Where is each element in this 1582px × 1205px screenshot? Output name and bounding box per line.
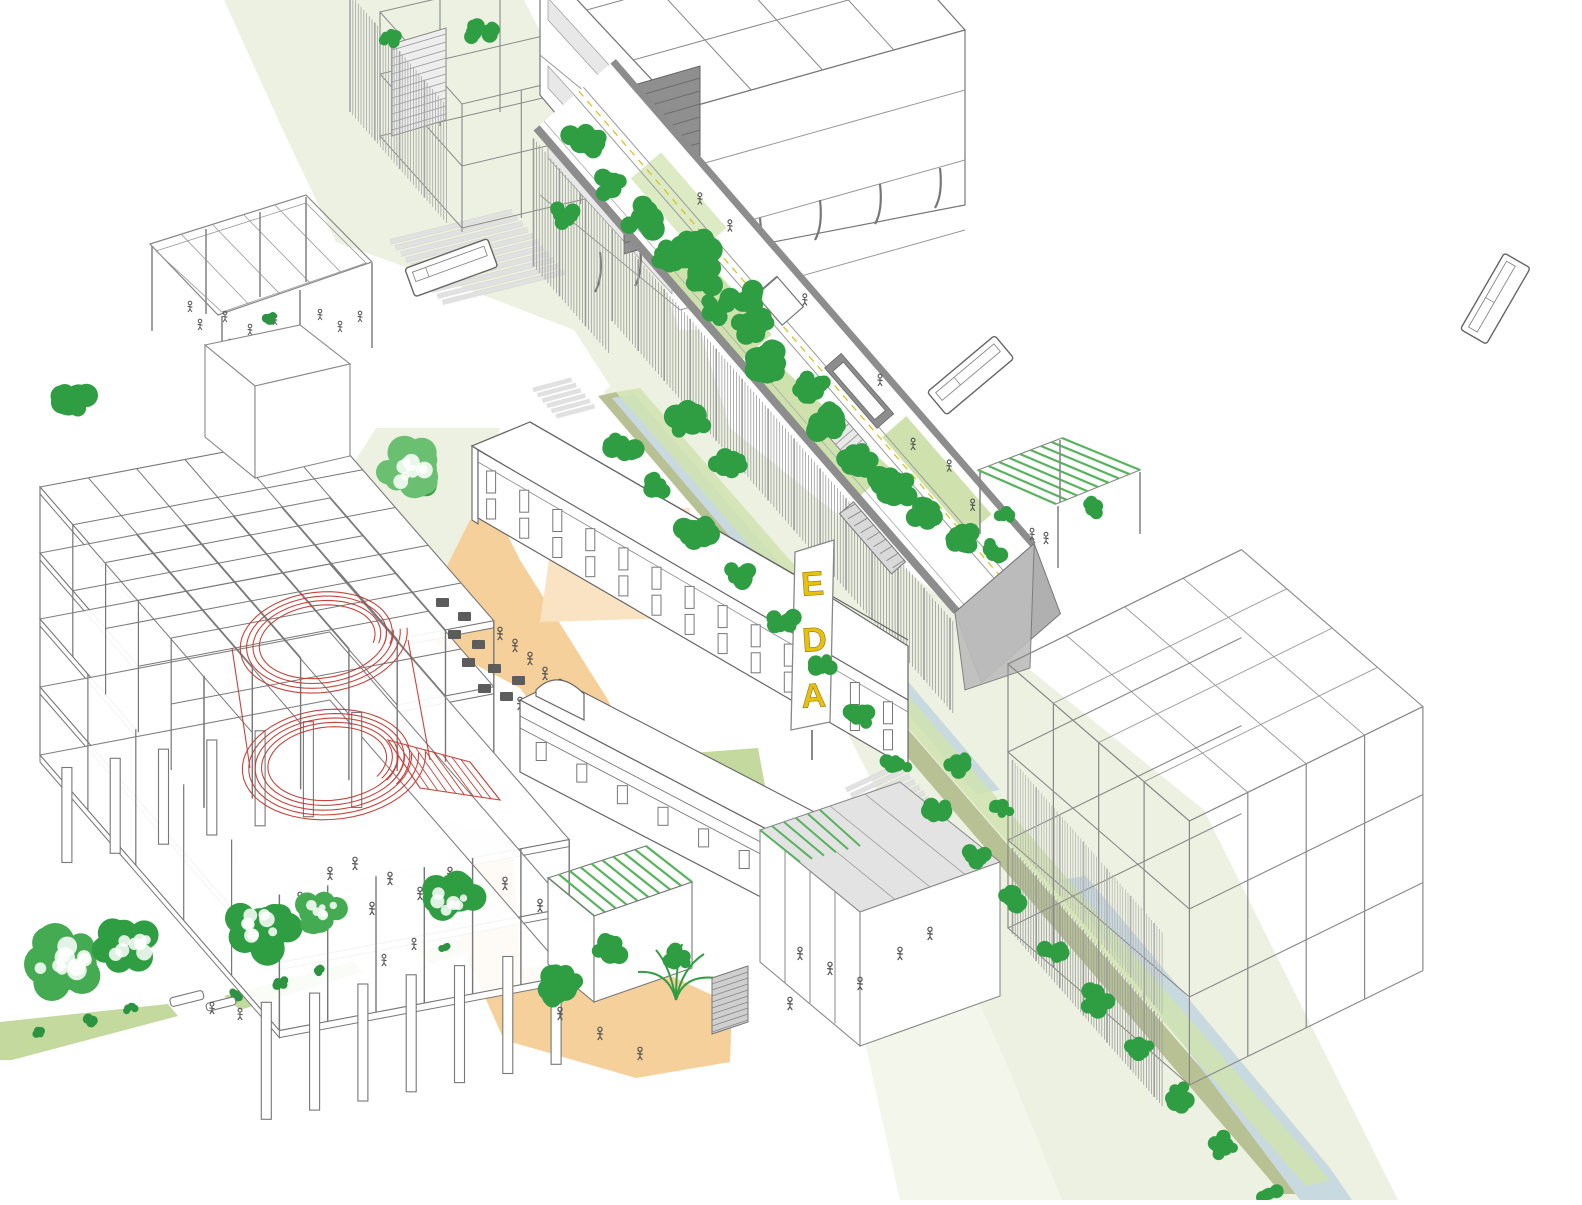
svg-text:E: E	[800, 564, 825, 603]
svg-text:A: A	[800, 676, 827, 716]
svg-text:D: D	[801, 620, 828, 660]
